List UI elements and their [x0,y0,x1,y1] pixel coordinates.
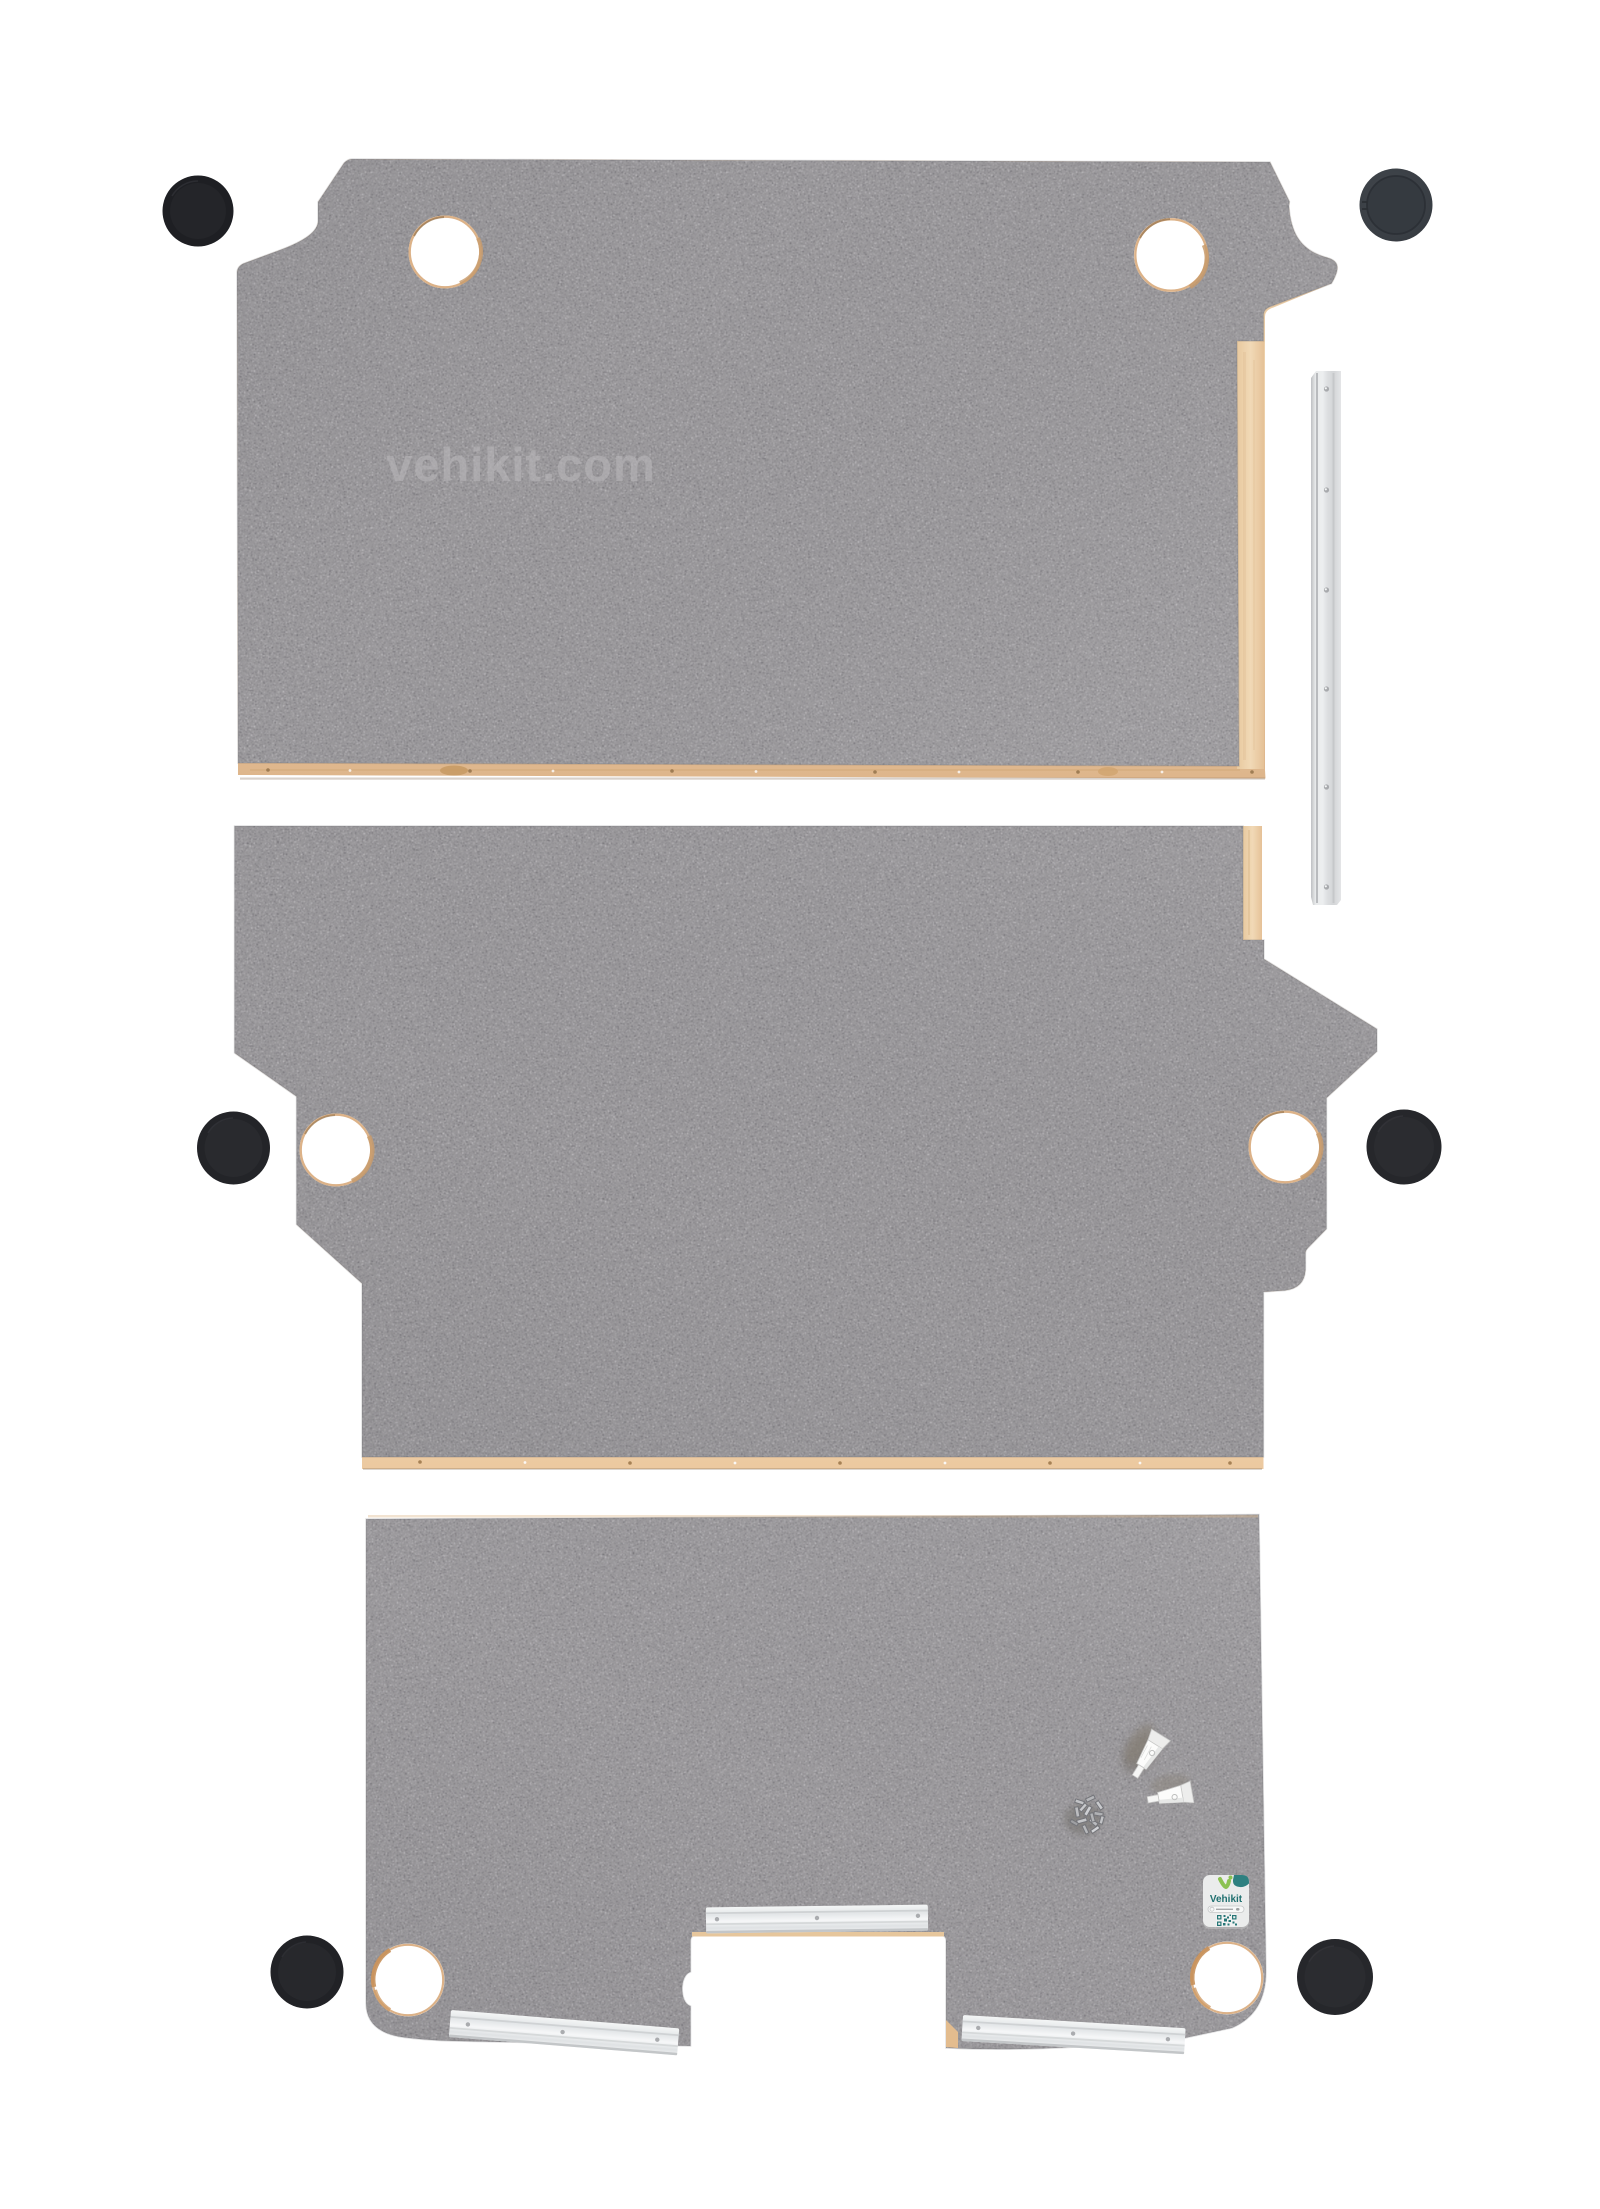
svg-text:Vehikit: Vehikit [1210,1894,1243,1905]
svg-text:vehikit.com: vehikit.com [386,438,656,491]
